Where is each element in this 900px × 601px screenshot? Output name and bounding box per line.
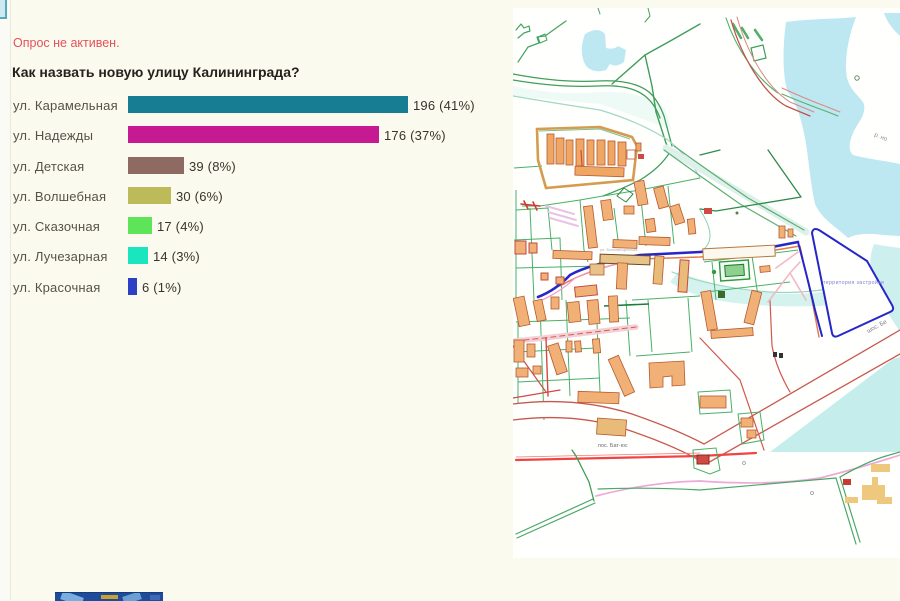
svg-text:ул. Благовещенская: ул. Благовещенская (600, 247, 637, 252)
svg-text:пос. Бат-юс: пос. Бат-юс (598, 443, 628, 449)
svg-text:территория застройки: территория застройки (823, 279, 884, 286)
